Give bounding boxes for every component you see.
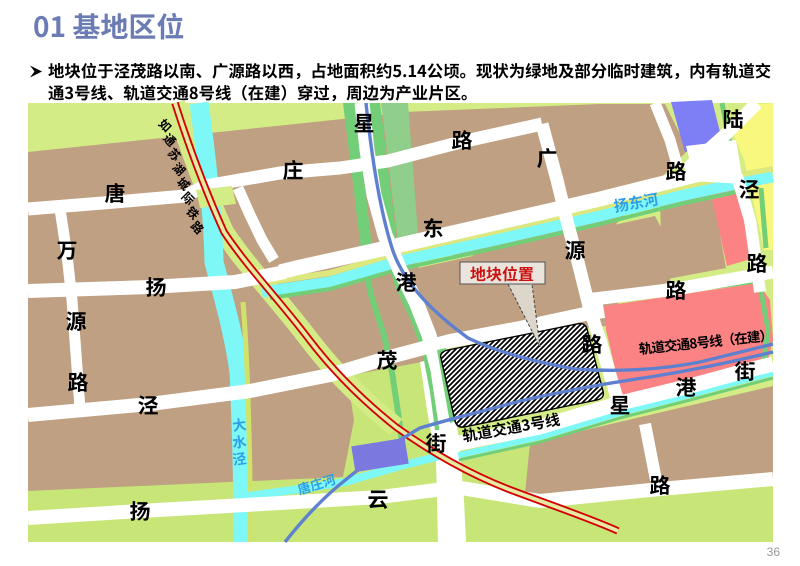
svg-text:36: 36 [767, 545, 781, 559]
